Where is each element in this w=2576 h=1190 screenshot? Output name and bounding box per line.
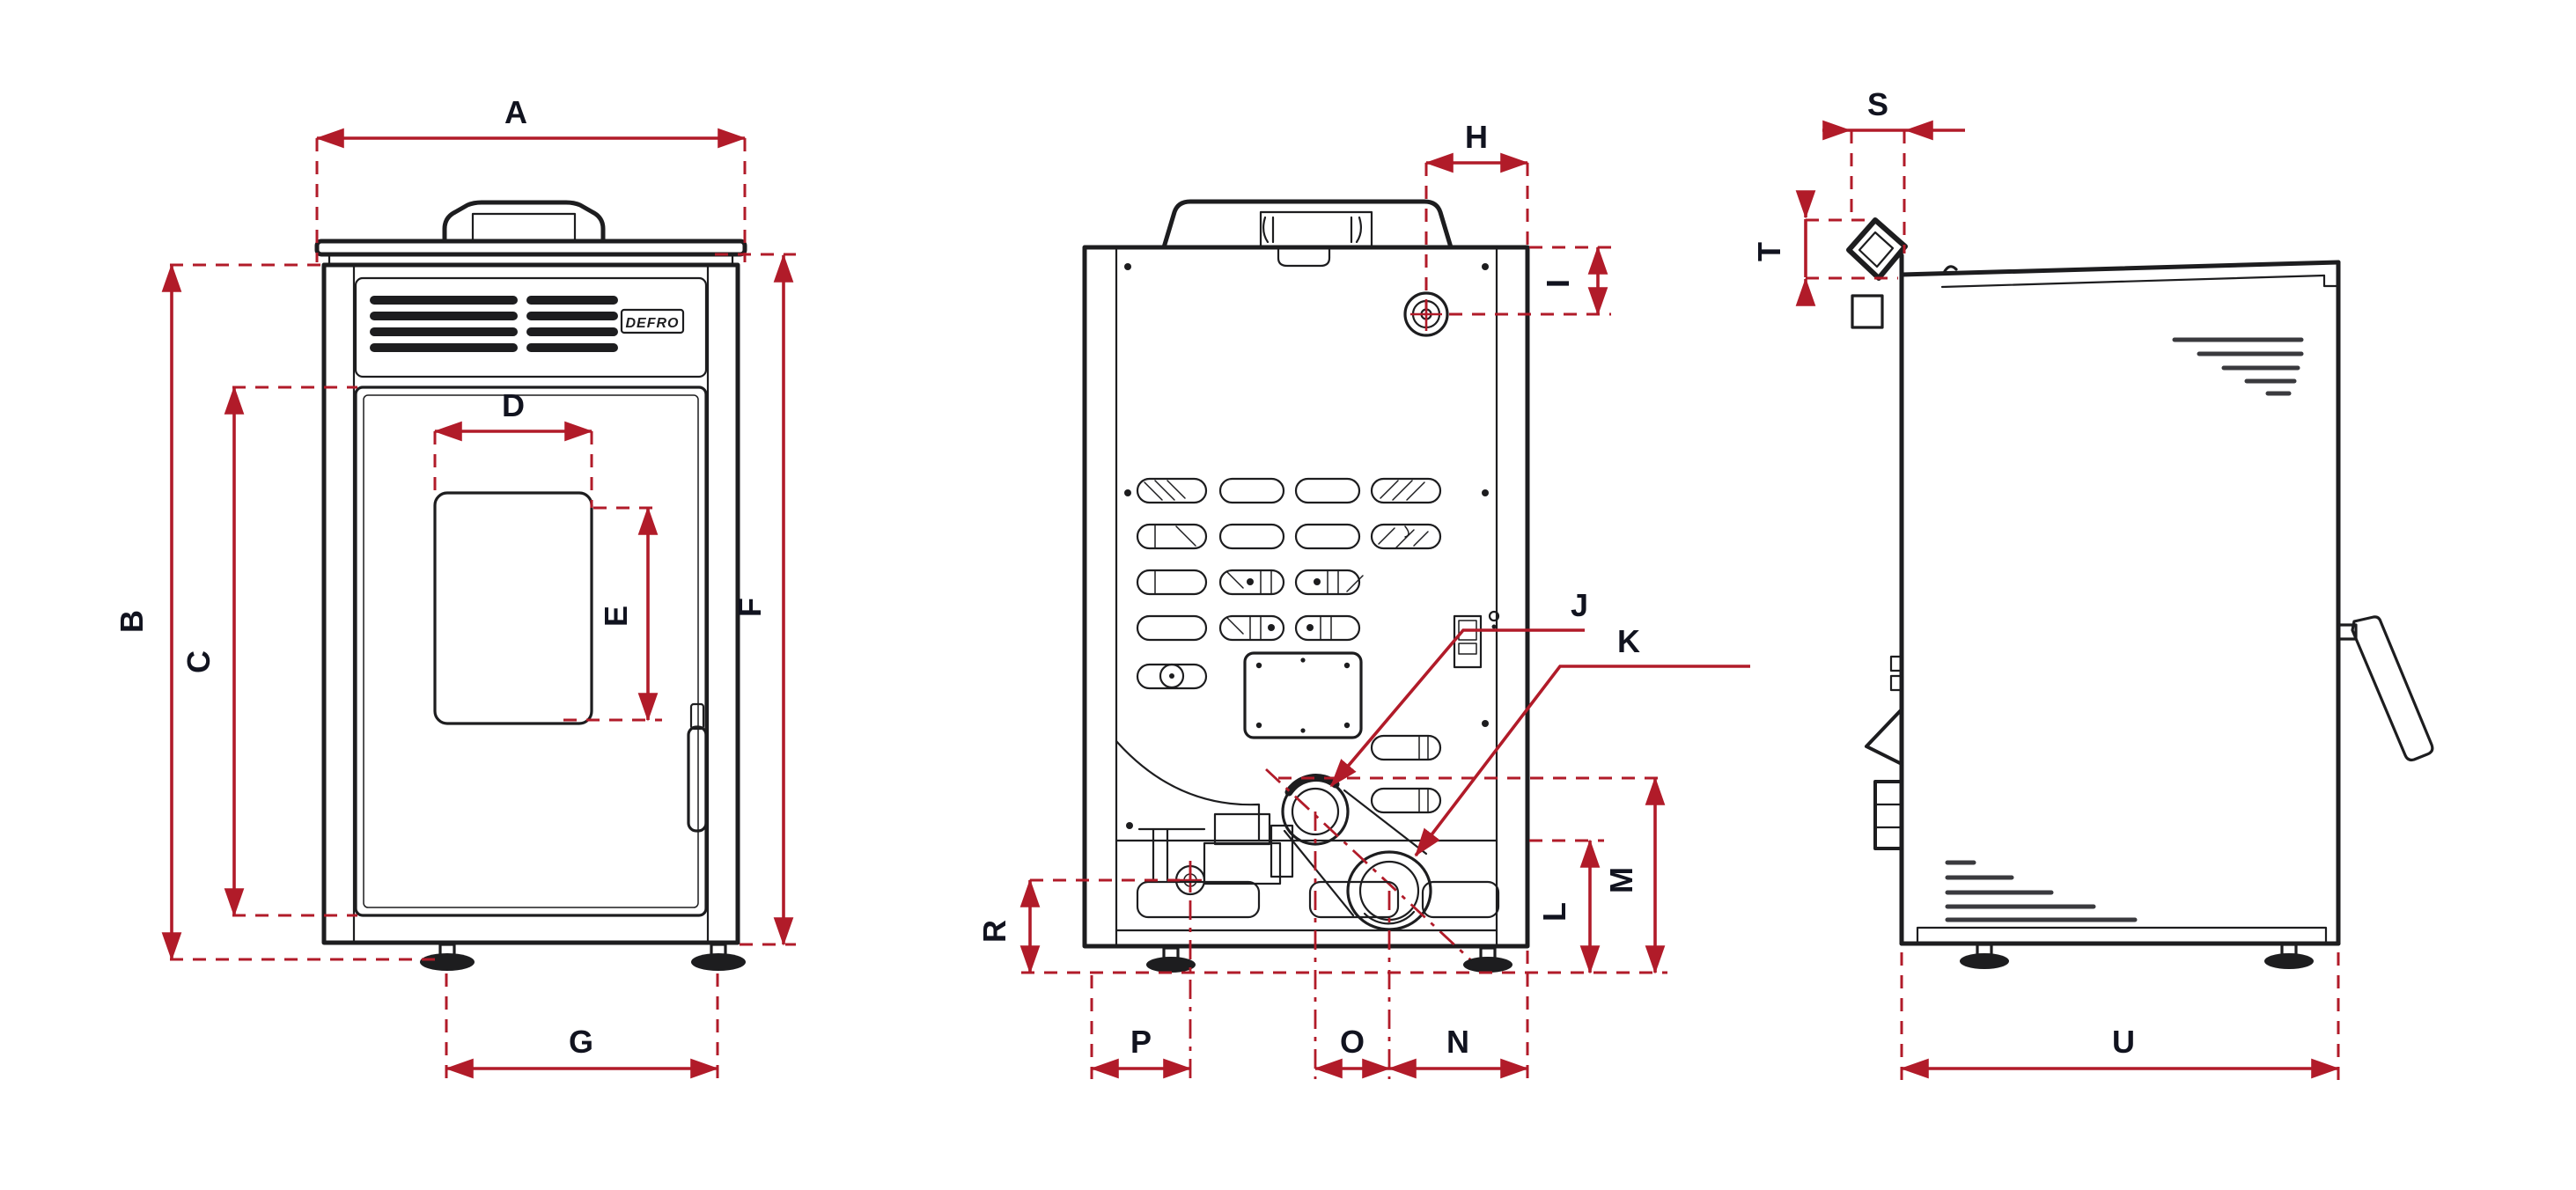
dim-label-I: I (1540, 279, 1576, 288)
dim-label-E: E (598, 606, 634, 627)
dimension-P: P (1092, 1024, 1190, 1069)
dimension-C: C (180, 387, 357, 915)
dim-label-F: F (732, 598, 768, 617)
rear-top-cap (1164, 202, 1451, 247)
rear-top-cap-inner (1261, 212, 1372, 247)
dim-label-O: O (1340, 1024, 1365, 1060)
dimension-O: O (1315, 1024, 1389, 1069)
dimension-A: A (317, 94, 745, 262)
dimension-L: L (1529, 841, 1604, 973)
front-top-cap (445, 202, 603, 241)
rear-exhaust-port (1283, 778, 1348, 844)
rear-view: H I J K M L (976, 119, 1750, 1079)
dimension-D: D (435, 387, 592, 508)
front-door (356, 387, 706, 915)
dimension-E: E (563, 508, 662, 720)
rear-upper-port (1405, 293, 1447, 335)
rear-junction-plate (1245, 653, 1361, 738)
brand-logo-text: DEFRO (626, 316, 680, 331)
dimension-I: I (1449, 247, 1611, 314)
dimension-N: N (1389, 1024, 1527, 1069)
side-hopper-chute (1866, 709, 1902, 764)
front-feet (420, 944, 746, 971)
dimension-U: U (1902, 952, 2338, 1083)
stove-dimension-diagram: DEFRO A B (0, 0, 2576, 1190)
front-grille-slats (370, 296, 618, 352)
dim-label-D: D (502, 387, 525, 423)
dim-label-T: T (1751, 242, 1787, 261)
side-view: S T U (1751, 86, 2432, 1083)
leader-K: K (1416, 623, 1750, 856)
dimension-M: M (1021, 778, 1667, 973)
dim-label-N: N (1446, 1024, 1469, 1060)
dim-label-R: R (976, 920, 1012, 943)
dimension-S: S (1822, 86, 1965, 253)
rear-hopper-mechanism (1116, 741, 1292, 894)
rear-terminal-switch (1454, 612, 1498, 667)
side-top-plate (1902, 262, 2338, 275)
dim-label-C: C (180, 650, 217, 673)
side-flue-stub (1849, 220, 1905, 278)
side-bottom-vent-lines (1947, 863, 2135, 920)
rear-bottom-slots (1137, 882, 1498, 917)
dimension-R: R (976, 880, 1180, 973)
dimension-F: F (715, 254, 796, 944)
dim-label-L: L (1536, 902, 1572, 922)
dim-label-A: A (504, 94, 527, 130)
front-body (324, 265, 738, 943)
dim-label-G: G (569, 1024, 593, 1060)
dim-label-M: M (1603, 867, 1639, 893)
dimension-G: G (446, 973, 718, 1083)
front-door-window (435, 493, 592, 724)
side-lower-box (1875, 782, 1902, 848)
dim-label-B: B (114, 610, 150, 633)
front-view: DEFRO A B (114, 94, 796, 1083)
side-rear-box (1852, 296, 1882, 327)
dim-label-J: J (1571, 587, 1588, 623)
dim-label-P: P (1130, 1024, 1152, 1060)
rear-vent-slots (1137, 479, 1440, 812)
side-door-handle (2352, 617, 2432, 760)
dim-label-H: H (1465, 119, 1488, 155)
dim-label-K: K (1617, 623, 1640, 659)
dimension-T: T (1751, 194, 1898, 303)
side-top-vent-lines (2175, 340, 2301, 393)
stove-dimension-diagram-page: DEFRO A B (0, 0, 2576, 1190)
front-top-plate (317, 241, 745, 254)
dim-label-S: S (1867, 86, 1888, 122)
port-axis-diagonal (1266, 769, 1472, 961)
front-door-handle-mount (691, 704, 703, 729)
rear-cap-tab (1278, 247, 1329, 266)
front-door-handle (688, 727, 706, 831)
dim-label-U: U (2112, 1024, 2135, 1060)
dimension-B: B (114, 265, 445, 959)
rear-feet (1146, 948, 1512, 973)
front-top-cap-inner (473, 214, 575, 241)
side-feet (1960, 944, 2314, 969)
